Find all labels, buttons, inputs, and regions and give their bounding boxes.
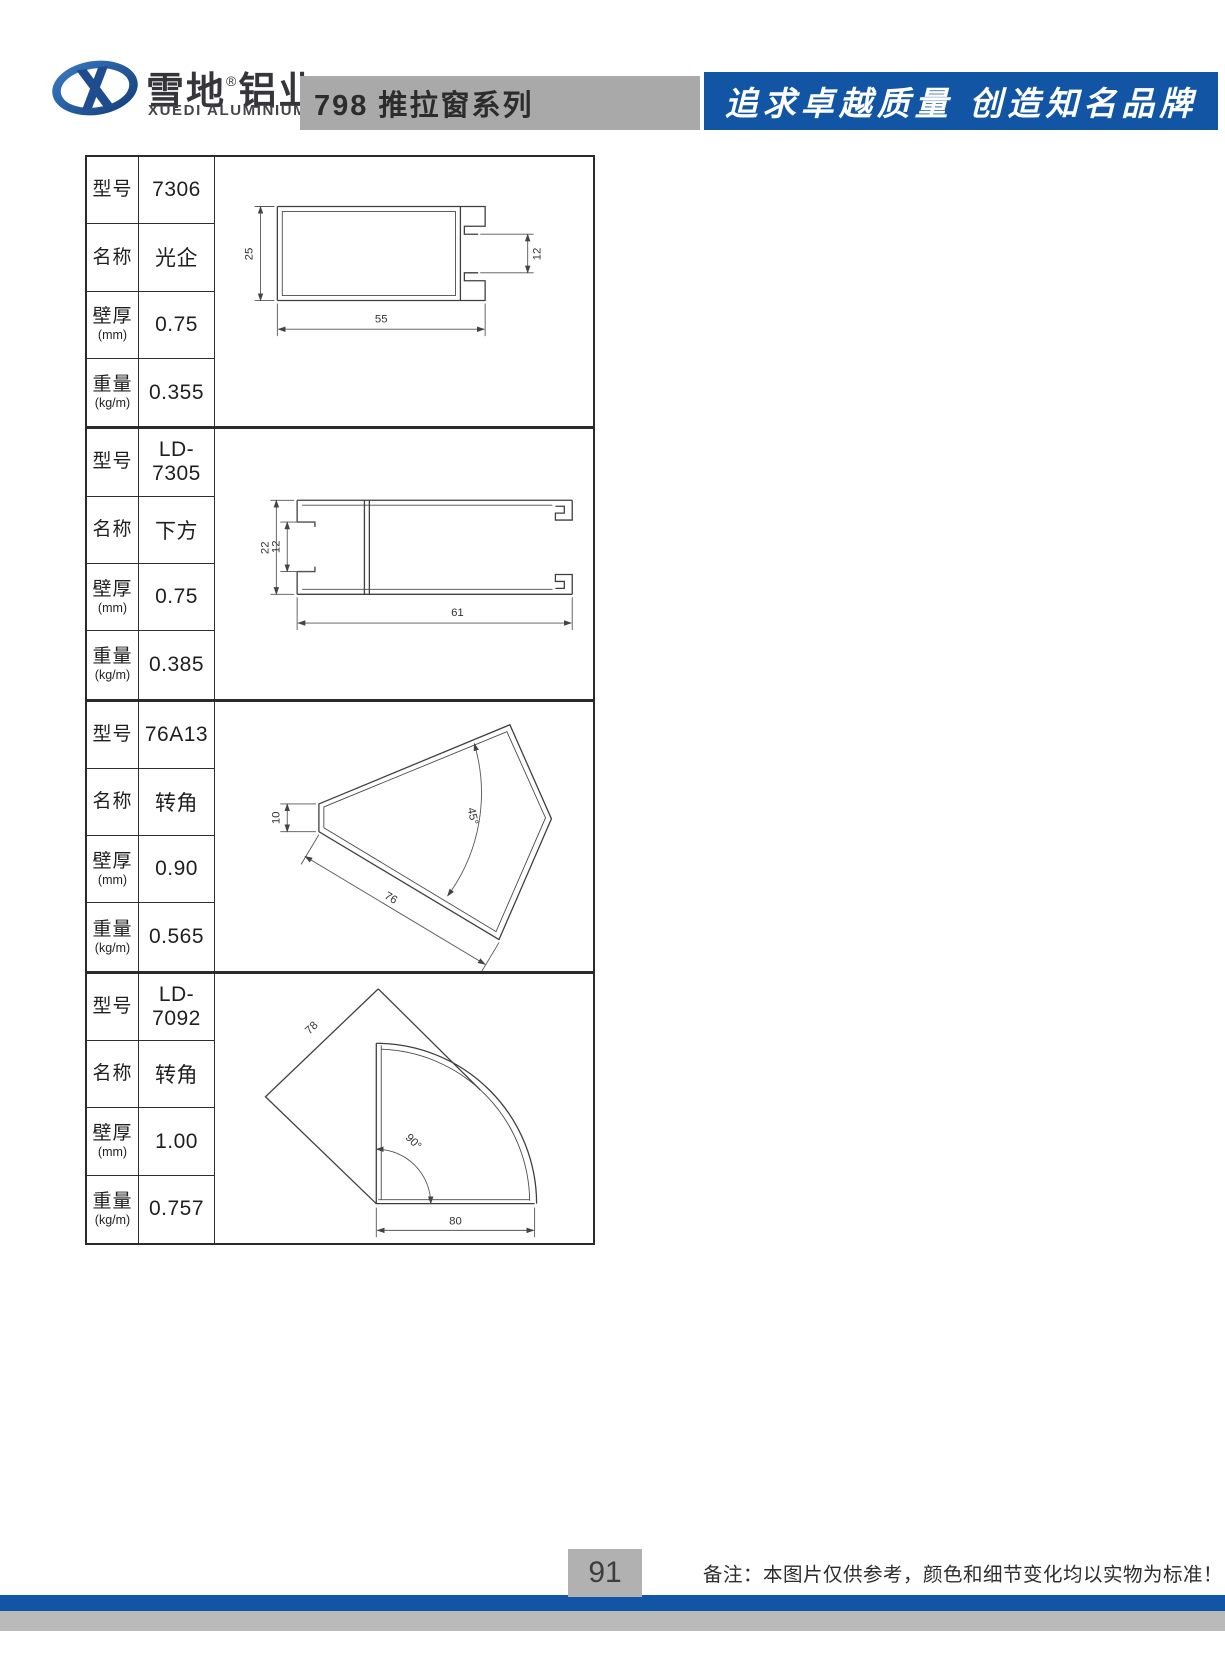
- spec-section-ld7092: 型号 LD-7092 90° 78: [87, 974, 593, 1243]
- value-weight: 0.757: [139, 1176, 215, 1243]
- value-name: 光企: [139, 224, 215, 291]
- profile-outline-ld7092: [265, 989, 536, 1204]
- series-title-bar: 798 推拉窗系列: [300, 76, 700, 130]
- profile-outline-7306: [277, 206, 485, 300]
- value-thickness: 0.75: [139, 564, 215, 631]
- catalog-page: 雪地®铝业 XUEDI ALUMINIUM 798 推拉窗系列 追求卓越质量 创…: [0, 0, 1225, 1675]
- value-model: 7306: [139, 157, 215, 224]
- spec-section-76a13: 型号 76A13 45° 10 76: [87, 702, 593, 974]
- dim-label-width: 80: [449, 1215, 462, 1227]
- bottom-blue-bar: [0, 1595, 1225, 1611]
- value-name: 转角: [139, 769, 215, 836]
- dimensions-7306: 25 12 55: [244, 206, 544, 336]
- value-model: 76A13: [139, 702, 215, 769]
- drawing-cell-7306: 25 12 55: [215, 157, 593, 426]
- label-thickness: 壁厚(mm): [87, 292, 139, 359]
- spec-section-7306: 型号 7306: [87, 157, 593, 429]
- dim-label-width: 55: [375, 313, 388, 325]
- value-model: LD-7305: [139, 429, 215, 496]
- bottom-gray-bar: [0, 1611, 1225, 1631]
- value-name: 下方: [139, 497, 215, 564]
- dim-label-angle: 90°: [403, 1132, 424, 1153]
- profile-spec-table: 型号 7306: [85, 155, 595, 1245]
- dim-label-diagonal: 78: [303, 1019, 320, 1036]
- registered-mark: ®: [226, 73, 238, 89]
- label-thickness: 壁厚(mm): [87, 1108, 139, 1175]
- label-thickness: 壁厚(mm): [87, 564, 139, 631]
- profile-drawing-ld7305: 22 12 61: [215, 429, 593, 698]
- value-weight: 0.385: [139, 631, 215, 698]
- drawing-cell-ld7305: 22 12 61: [215, 429, 593, 698]
- label-thickness: 壁厚(mm): [87, 836, 139, 903]
- dimensions-76a13: 45° 10 76: [270, 743, 499, 971]
- profile-drawing-7306: 25 12 55: [215, 157, 593, 426]
- drawing-cell-ld7092: 90° 78 80: [215, 974, 593, 1243]
- brand-name-en: XUEDI ALUMINIUM: [148, 102, 307, 119]
- label-weight: 重量(kg/m): [87, 631, 139, 698]
- dimensions-ld7092: 90° 78 80: [303, 1019, 534, 1237]
- dim-label-angle: 45°: [465, 806, 480, 825]
- footer-note: 备注：本图片仅供参考，颜色和细节变化均以实物为标准！: [703, 1558, 1223, 1587]
- spec-section-ld7305: 型号 LD-7305 22: [87, 429, 593, 701]
- label-weight: 重量(kg/m): [87, 1176, 139, 1243]
- profile-outline-76a13: [319, 724, 552, 939]
- label-model: 型号: [87, 702, 139, 769]
- xuedi-logo-icon: [48, 56, 142, 120]
- label-name: 名称: [87, 769, 139, 836]
- value-thickness: 0.75: [139, 292, 215, 359]
- value-weight: 0.565: [139, 903, 215, 970]
- value-name: 转角: [139, 1041, 215, 1108]
- label-model: 型号: [87, 429, 139, 496]
- label-name: 名称: [87, 1041, 139, 1108]
- profile-outline-ld7305: [297, 501, 572, 595]
- label-name: 名称: [87, 224, 139, 291]
- value-thickness: 1.00: [139, 1108, 215, 1175]
- drawing-cell-76a13: 45° 10 76: [215, 702, 593, 971]
- dim-label-slot: 12: [532, 248, 544, 261]
- label-model: 型号: [87, 974, 139, 1041]
- page-number-badge: 91: [568, 1549, 642, 1597]
- label-weight: 重量(kg/m): [87, 359, 139, 426]
- value-thickness: 0.90: [139, 836, 215, 903]
- label-name: 名称: [87, 497, 139, 564]
- profile-drawing-ld7092: 90° 78 80: [215, 974, 593, 1243]
- dimensions-ld7305: 22 12 61: [259, 501, 572, 631]
- slogan-banner: 追求卓越质量 创造知名品牌: [704, 72, 1218, 130]
- value-model: LD-7092: [139, 974, 215, 1041]
- dim-label-edge: 10: [270, 811, 282, 824]
- label-weight: 重量(kg/m): [87, 903, 139, 970]
- dim-label-slot: 12: [270, 541, 282, 554]
- profile-drawing-76a13: 45° 10 76: [215, 702, 593, 971]
- value-weight: 0.355: [139, 359, 215, 426]
- dim-label-height: 25: [244, 248, 256, 261]
- xuedi-logo: [48, 56, 142, 120]
- label-model: 型号: [87, 157, 139, 224]
- dim-label-width: 61: [451, 607, 464, 619]
- series-title: 798 推拉窗系列: [314, 82, 533, 124]
